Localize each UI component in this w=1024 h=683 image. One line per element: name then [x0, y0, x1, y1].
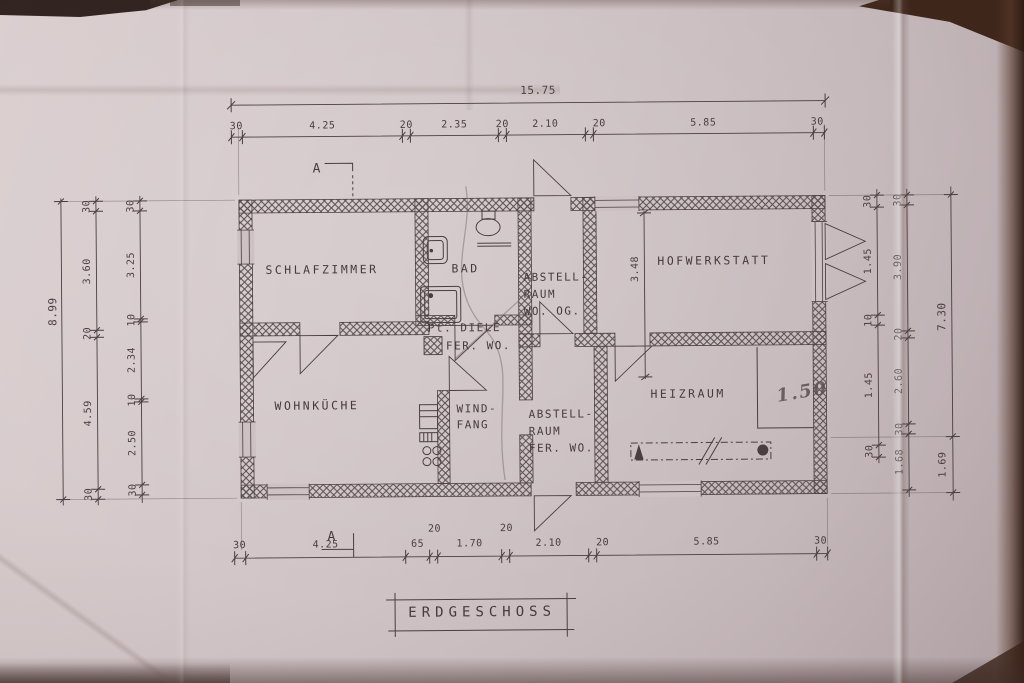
dim-rightin-4: 30 — [864, 445, 875, 458]
dim-bottom-3: 20 — [428, 524, 441, 535]
room-label-diele-2: FER. WO. — [446, 339, 511, 353]
dim-top-8: 30 — [811, 117, 824, 128]
dim-bottom-2: 65 — [411, 539, 424, 550]
dim-leftin-4: 10 — [127, 393, 138, 406]
room-label-bad: BAD — [451, 261, 479, 275]
dim-rightmid-5: 1.68 — [894, 449, 905, 475]
dim-rightmid-3: 2.60 — [894, 368, 905, 394]
room-label-windfang-2: FANG — [457, 418, 490, 431]
dim-bottom-5: 20 — [500, 523, 513, 534]
room-label-abstellraum-fw-1: ABSTELL- — [529, 407, 594, 421]
dim-leftin-6: 30 — [128, 483, 139, 496]
dim-left-total: 8.99 — [46, 297, 59, 326]
section-marker-a-top: A — [313, 161, 322, 176]
dim-rightout-1: 1.69 — [937, 452, 948, 478]
toilet-icon — [476, 211, 511, 246]
dim-top-7: 5.85 — [690, 117, 716, 128]
dim-rightmid-1: 3.90 — [893, 254, 904, 280]
room-label-abstellraum-og-1: ABSTELL- — [523, 270, 588, 284]
dim-leftmid-3: 4.59 — [83, 400, 94, 426]
room-label-heizraum: HEIZRAUM — [650, 386, 725, 401]
floorplan-drawing: 15.75 30 4.25 20 2.35 20 2.10 20 5.85 30… — [0, 0, 1024, 683]
dim-top-total: 15.75 — [520, 84, 556, 97]
dim-top-1: 4.25 — [309, 120, 335, 131]
dim-bottom-4: 1.70 — [456, 538, 482, 549]
room-label-abstellraum-fw-2: RAUM — [529, 425, 562, 438]
floorplan-photo: 15.75 30 4.25 20 2.35 20 2.10 20 5.85 30… — [0, 0, 1024, 683]
dim-leftin-2: 10 — [126, 313, 137, 326]
dim-bottom-9: 30 — [814, 536, 827, 547]
room-label-abstellraum-og-3: WO. OG. — [524, 304, 581, 317]
dim-top-2: 20 — [400, 120, 413, 131]
dim-leftin-5: 2.50 — [127, 430, 138, 456]
dim-hofwerkstatt-depth: 3.48 — [630, 256, 641, 282]
dim-rightmid-0: 30 — [892, 193, 903, 206]
dim-bottom-7: 20 — [596, 537, 609, 548]
room-label-windfang-1: WIND- — [456, 402, 497, 415]
dim-rightmid-4: 30 — [894, 422, 905, 435]
section-marker-a-bottom: A — [327, 529, 336, 544]
dim-leftmid-2: 20 — [82, 327, 93, 340]
dim-rightmid-2: 20 — [893, 327, 904, 340]
plan-linework — [0, 0, 1024, 683]
dim-leftmid-1: 3.60 — [82, 258, 93, 284]
dim-leftin-0: 30 — [125, 199, 136, 212]
dim-top-4: 20 — [496, 119, 509, 130]
plan-title: ERDGESCHOSS — [396, 604, 568, 621]
dim-leftin-3: 2.34 — [127, 347, 138, 373]
dim-rightin-1: 1.45 — [863, 248, 874, 274]
dim-bottom-6: 2.10 — [535, 538, 561, 549]
room-label-wohnkueche: WOHNKÜCHE — [274, 398, 359, 413]
room-label-schlafzimmer: SCHLAFZIMMER — [265, 262, 378, 277]
dim-bottom-0: 30 — [233, 540, 246, 551]
dim-leftmid-0: 30 — [81, 200, 92, 213]
dim-leftin-1: 3.25 — [126, 252, 137, 278]
dim-rightin-3: 1.45 — [864, 372, 875, 398]
section-markers — [319, 163, 356, 557]
dim-top-5: 2.10 — [532, 119, 558, 130]
room-label-diele-1: Pt. DIELE — [428, 321, 501, 335]
dim-rightin-0: 30 — [862, 195, 873, 208]
dim-bottom-8: 5.85 — [693, 536, 719, 547]
room-label-hofwerkstatt: HOFWERKSTATT — [657, 253, 770, 268]
room-label-abstellraum-fw-3: FER. WO. — [529, 441, 594, 455]
dim-rightin-2: 10 — [863, 314, 874, 327]
dim-rightout-0: 7.30 — [935, 302, 948, 331]
room-label-abstellraum-og-2: RAUM — [524, 288, 557, 301]
dim-top-6: 20 — [593, 118, 606, 129]
boiler-icon — [631, 437, 771, 465]
dim-top-0: 30 — [230, 121, 243, 132]
dim-top-3: 2.35 — [441, 119, 467, 130]
chimney-icon — [424, 337, 442, 355]
dim-leftmid-4: 30 — [84, 488, 95, 501]
